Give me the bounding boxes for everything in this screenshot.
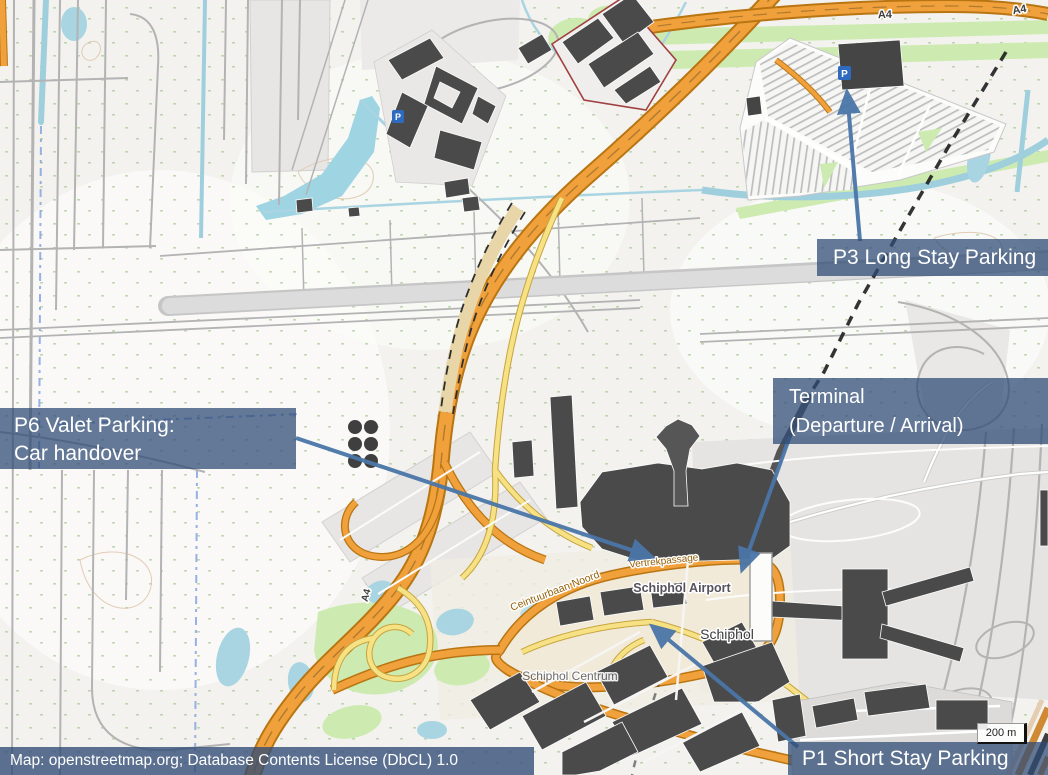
parking-icon-office: P xyxy=(392,110,404,123)
svg-text:P: P xyxy=(841,69,848,80)
label-p6-line1: P6 Valet Parking: xyxy=(14,412,296,440)
label-p6-line2: Car handover xyxy=(14,440,296,468)
map-screenshot: Schiphol Airport Schiphol Schiphol Centr… xyxy=(0,0,1048,775)
attribution-bar: Map: openstreetmap.org; Database Content… xyxy=(0,747,534,775)
svg-text:P: P xyxy=(395,112,401,122)
scale-bar: 200 m xyxy=(977,723,1027,744)
a4-shield-top: A4 xyxy=(878,9,893,22)
airport-label: Schiphol Airport xyxy=(633,581,731,595)
label-terminal-line2: (Departure / Arrival) xyxy=(789,412,1048,441)
label-p3-long-stay: P3 Long Stay Parking xyxy=(817,239,1048,276)
label-terminal-line1: Terminal xyxy=(789,383,1048,412)
label-p1-short-stay: P1 Short Stay Parking xyxy=(788,742,1048,775)
parking-icon-p3: P xyxy=(838,66,851,80)
town-label: Schiphol xyxy=(700,626,754,642)
label-terminal: Terminal (Departure / Arrival) xyxy=(773,378,1048,444)
label-p6-valet-parking: P6 Valet Parking: Car handover xyxy=(0,408,296,469)
centrum-label: Schiphol Centrum xyxy=(522,669,617,683)
